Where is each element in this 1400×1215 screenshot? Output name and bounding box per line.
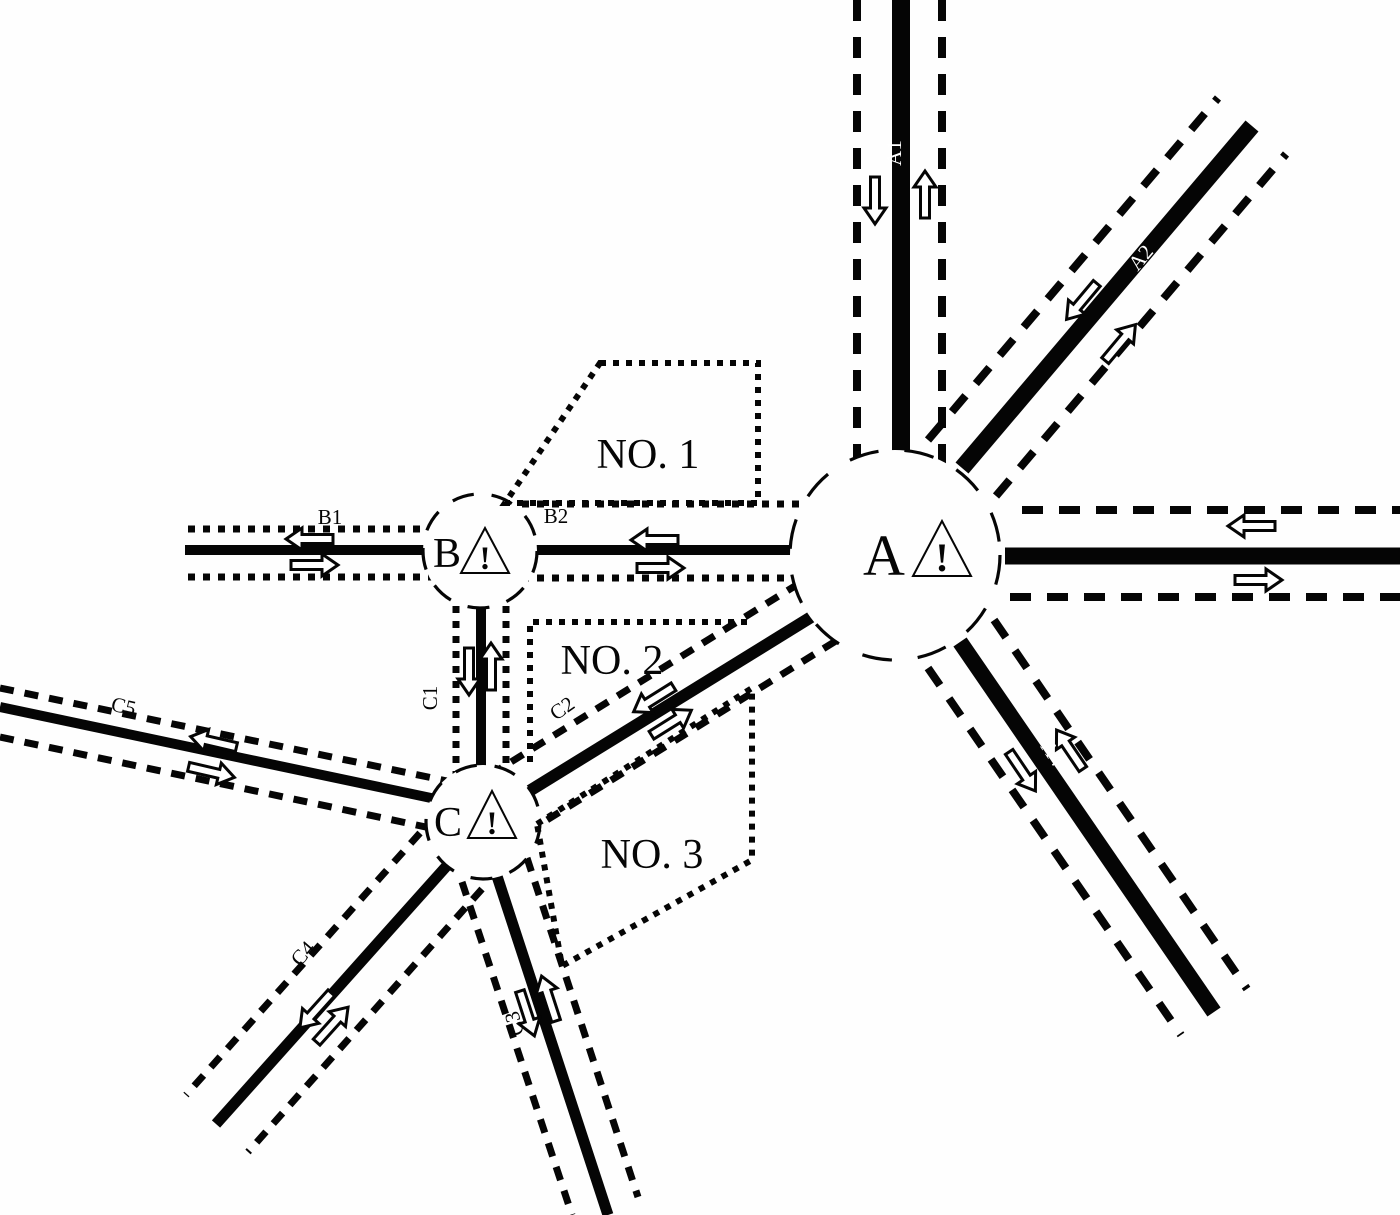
left-arrow-icon	[1228, 515, 1275, 537]
warning-exclamation: !	[480, 541, 491, 577]
road-a4	[928, 620, 1247, 1035]
road-a1	[857, 0, 942, 468]
right-arrow-icon	[1235, 569, 1282, 591]
zone-no3-border	[537, 688, 752, 966]
zone-no1-label: NO. 1	[597, 432, 700, 478]
upright-arrow-icon	[1097, 318, 1144, 368]
road-a4-edge-left	[928, 668, 1181, 1035]
road-c4-label: C4	[286, 936, 321, 971]
road-a2	[928, 98, 1286, 496]
zone-no3-label: NO. 3	[601, 832, 704, 878]
road-network-diagram: NO. 1 NO. 2 NO. 3 A1 A2 A4 B1 B2 C1 C2 C…	[0, 0, 1400, 1215]
road-c1	[456, 595, 506, 785]
zone-no3: NO. 3	[537, 688, 752, 966]
zone-no1: NO. 1	[505, 363, 758, 503]
road-a1-label: A1	[882, 140, 906, 166]
road-c4-edge-right	[248, 889, 482, 1152]
up-arrow-icon	[914, 171, 936, 218]
right-arrow-icon	[291, 554, 338, 576]
road-c1-label: C1	[418, 686, 442, 711]
road-a4-edge-right	[994, 620, 1247, 989]
warning-exclamation: !	[487, 806, 498, 842]
road-a2-edge-lower	[996, 154, 1286, 496]
node-a-label: A	[863, 523, 905, 588]
road-c4-centerline	[216, 860, 452, 1124]
warning-exclamation: !	[935, 535, 948, 580]
road-c3	[462, 858, 638, 1215]
road-c5-label: C5	[109, 692, 138, 721]
road-a4-centerline	[960, 642, 1214, 1012]
road-a3	[1005, 510, 1400, 597]
road-c5	[0, 688, 452, 830]
road-b2-label: B2	[544, 504, 569, 528]
road-c4	[186, 833, 482, 1152]
node-c-label: C	[434, 800, 462, 846]
zone-no2-label: NO. 2	[561, 638, 664, 684]
road-a2-centerline	[962, 126, 1252, 468]
road-b1-label: B1	[318, 505, 343, 529]
road-a2-edge-upper	[928, 98, 1218, 440]
node-b-label: B	[433, 531, 461, 577]
down-arrow-icon	[864, 177, 886, 224]
